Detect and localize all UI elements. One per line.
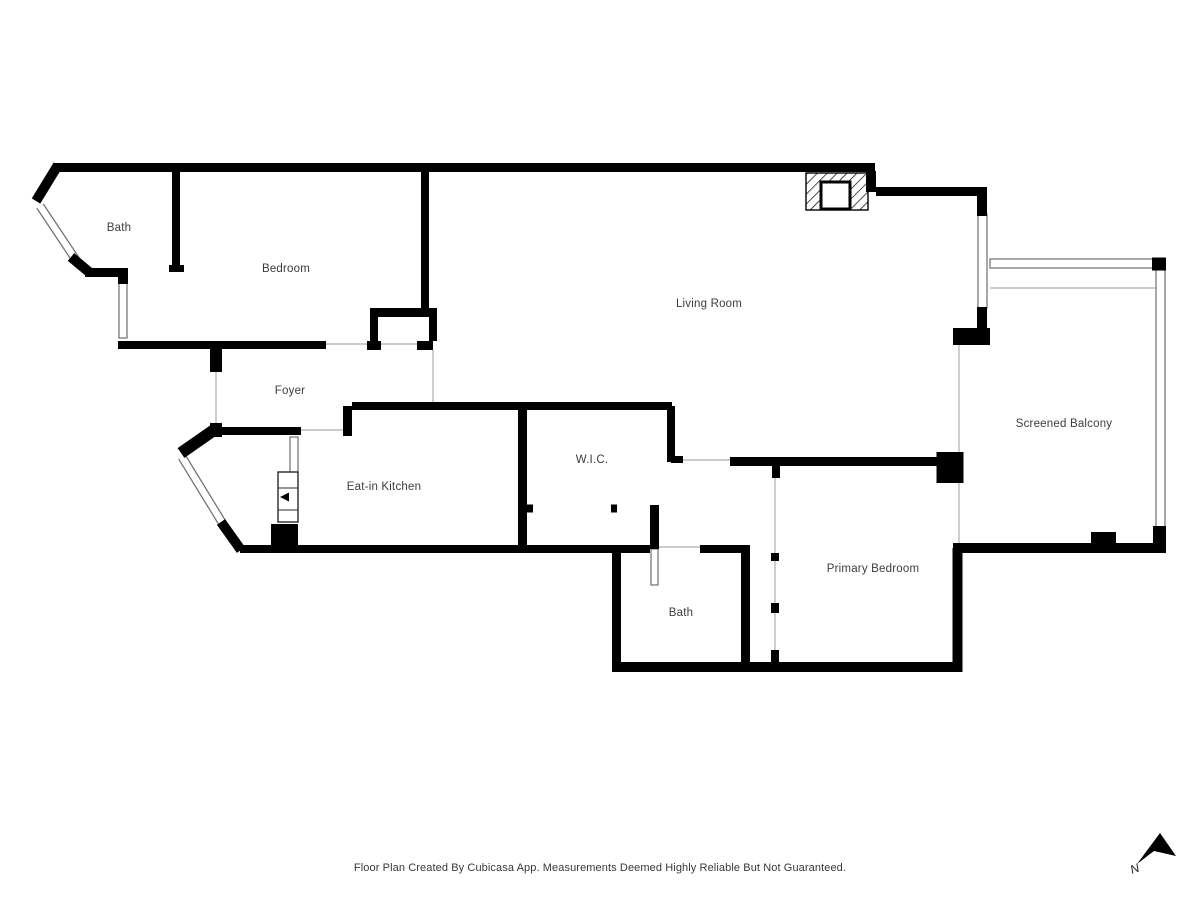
floorplan-svg: BathBedroomLiving RoomFoyerEat-in Kitche… (0, 0, 1200, 900)
north-arrow-icon (1137, 833, 1176, 864)
window (119, 283, 127, 338)
walls-layer (36, 165, 1166, 672)
room-label-bath: Bath (107, 222, 131, 234)
wall-segment (181, 430, 214, 453)
window (978, 214, 987, 308)
floorplan-page: BathBedroomLiving RoomFoyerEat-in Kitche… (0, 0, 1200, 900)
window (290, 437, 298, 473)
window (1156, 268, 1165, 527)
window-diagonal (182, 457, 223, 524)
footer-disclaimer: Floor Plan Created By Cubicasa App. Meas… (0, 862, 1200, 874)
room-label-primary-bedroom: Primary Bedroom (827, 563, 919, 575)
window (990, 259, 1153, 268)
fireplace-inner (821, 182, 850, 209)
room-label-bedroom: Bedroom (262, 263, 310, 275)
room-label-screened-balcony: Screened Balcony (1016, 418, 1113, 430)
room-label-foyer: Foyer (275, 385, 305, 397)
windows-layer (40, 206, 1165, 585)
room-label-bath: Bath (669, 607, 693, 619)
room-label-w-i-c-: W.I.C. (576, 454, 609, 466)
window-diagonal (40, 206, 76, 260)
room-label-living-room: Living Room (676, 298, 742, 310)
room-label-eat-in-kitchen: Eat-in Kitchen (347, 481, 421, 493)
door-leaf (651, 549, 658, 585)
wall-segment (36, 165, 58, 201)
wall-segment (221, 522, 241, 550)
wall-segment (71, 257, 89, 272)
openings-layer (216, 288, 1156, 650)
